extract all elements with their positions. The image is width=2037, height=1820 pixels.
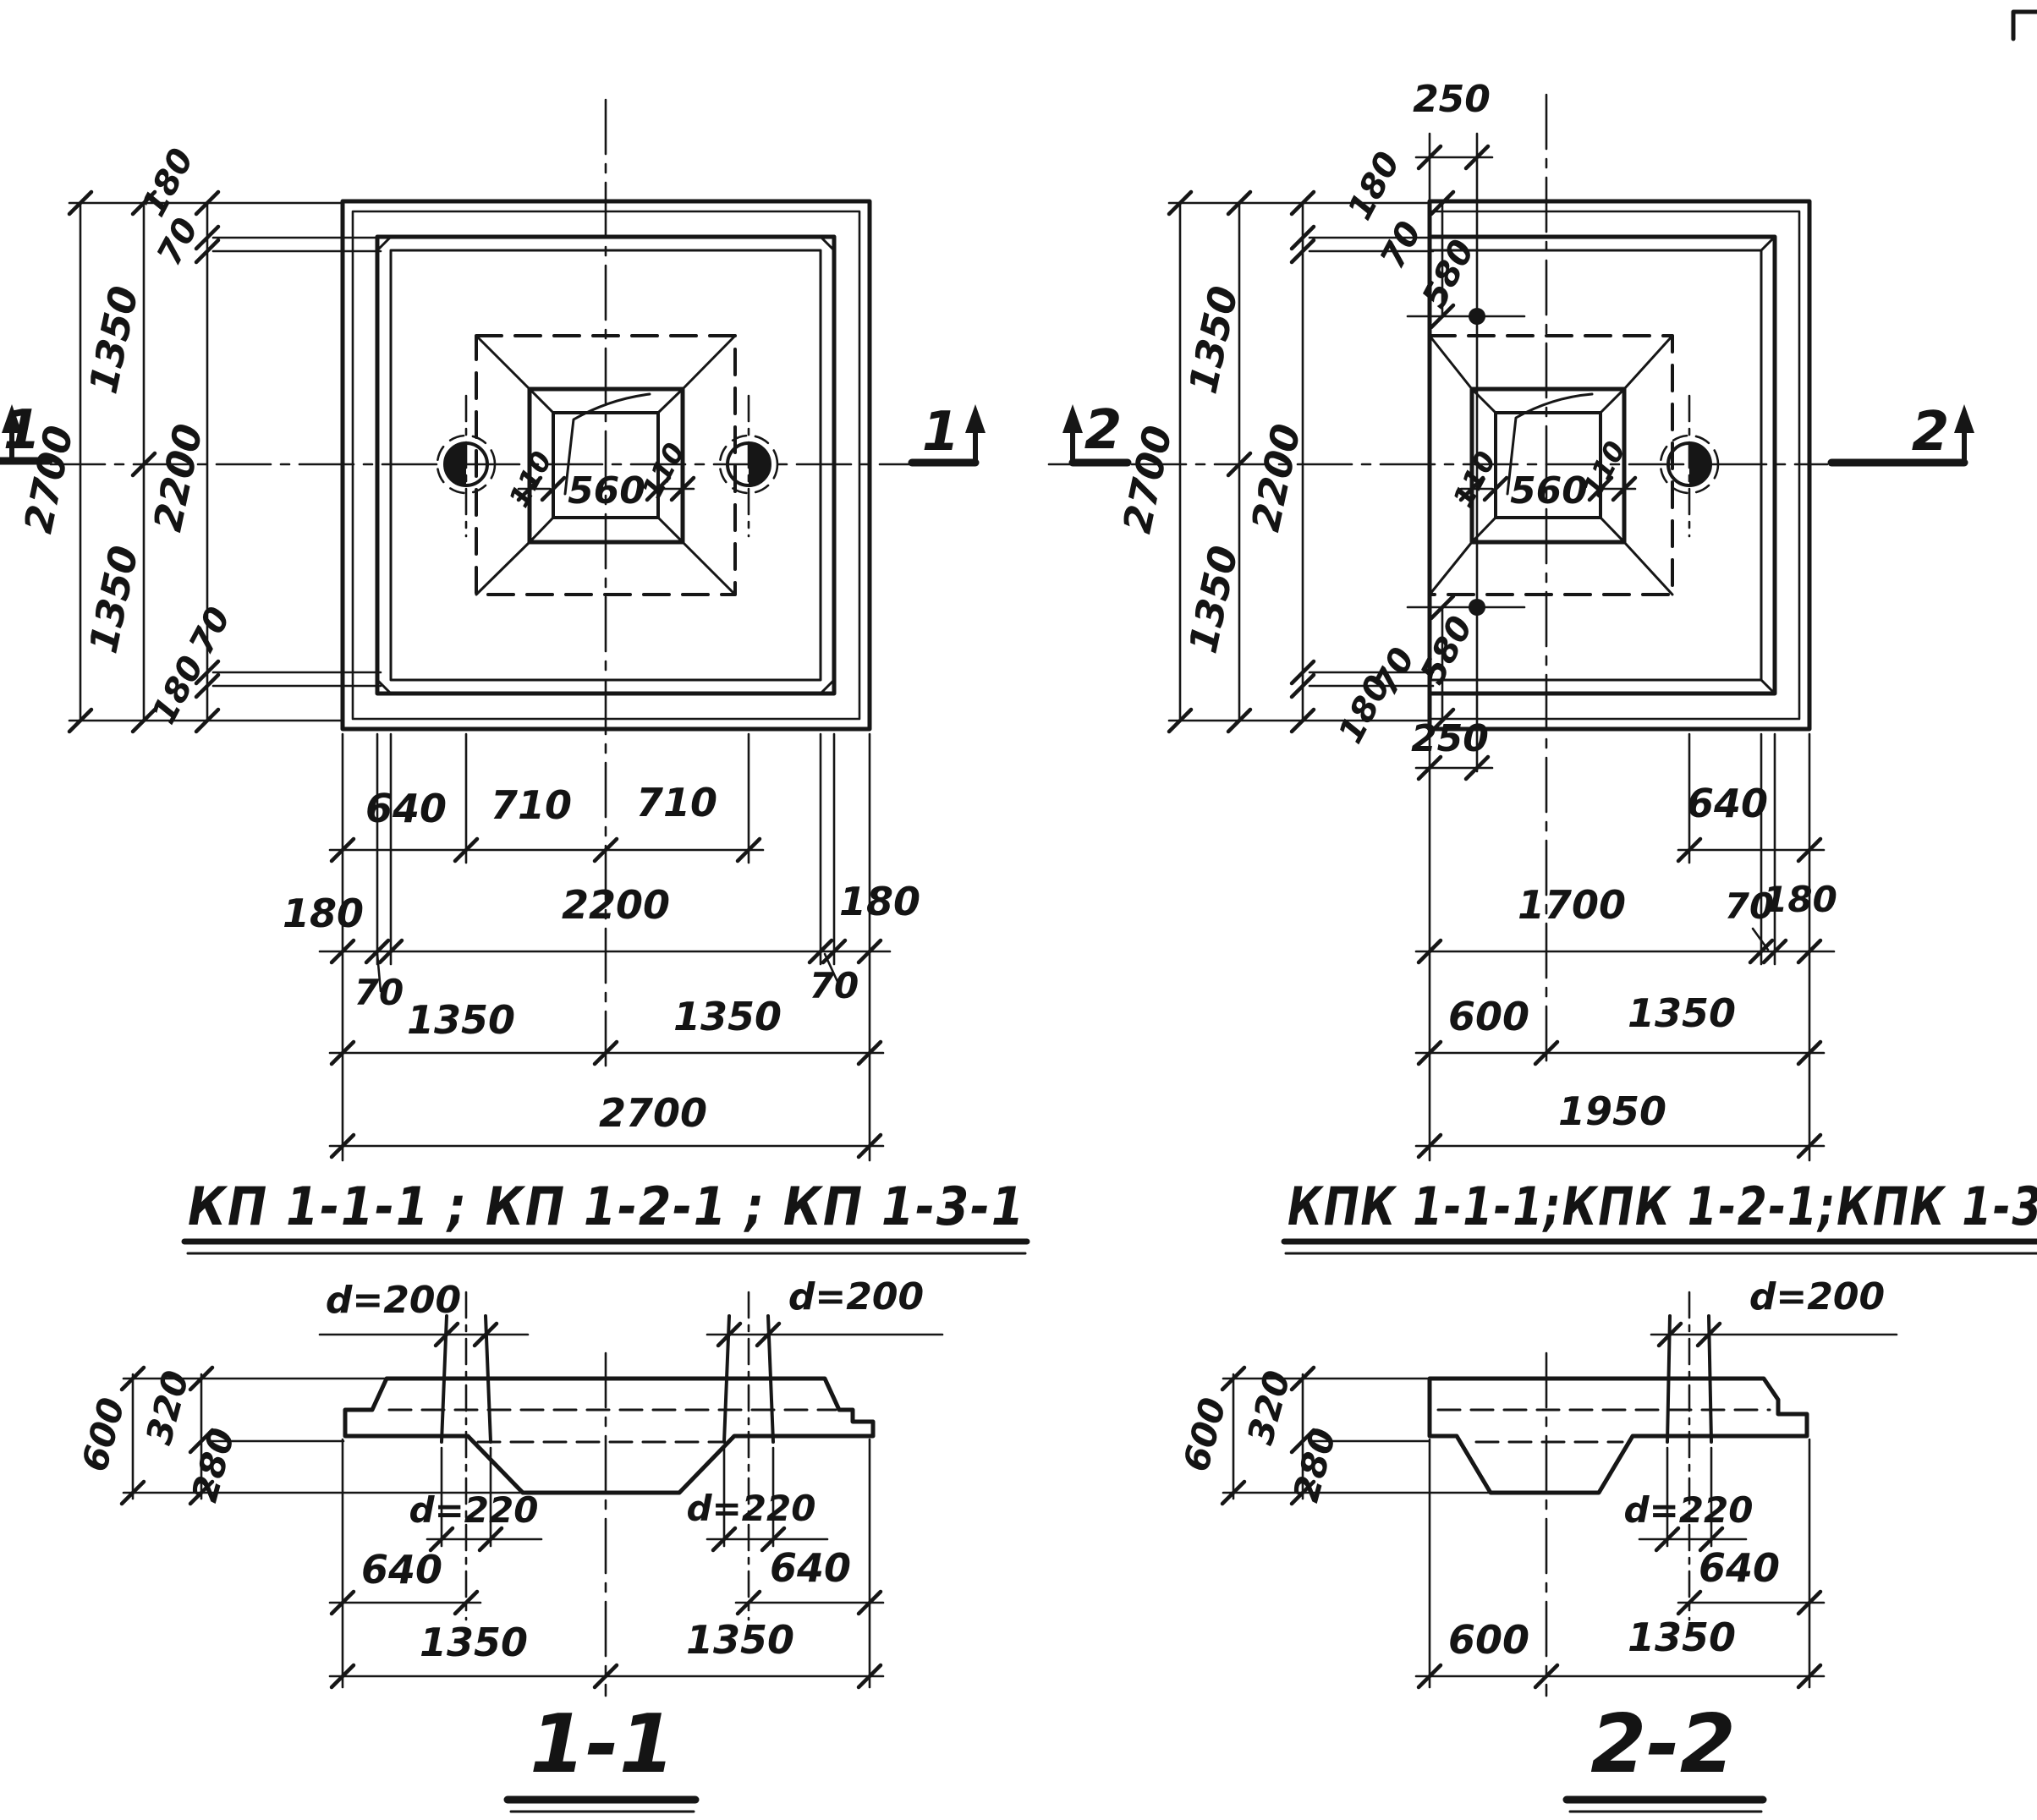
dim-label: 1350 <box>1180 282 1247 397</box>
dim-label: d=220 <box>409 1489 539 1531</box>
section-2-2: d=200 320 600 280 d=220 640 600 1350 2-2 <box>1175 1275 1897 1812</box>
dim-label: 250 <box>1413 78 1491 121</box>
dim-label: 640 <box>1687 781 1768 826</box>
dim-label: 70 <box>182 601 239 661</box>
dim-label: 2200 <box>1243 419 1309 534</box>
section-mark-2-right-arrow <box>1954 404 1974 433</box>
dim-label: 1350 <box>1180 541 1247 656</box>
dim-label: 600 <box>74 1394 133 1476</box>
dim-label: 70 <box>1373 216 1430 276</box>
dim-label: d=220 <box>1624 1489 1754 1531</box>
dim-label: d=200 <box>326 1279 461 1322</box>
dim-label: 600 <box>1175 1394 1234 1476</box>
dim-label: 600 <box>1448 994 1529 1039</box>
drawing-sheet: 180 70 1350 2700 2200 1350 70 180 560 11… <box>0 0 2037 1820</box>
section-mark-1-right-arrow <box>965 404 986 433</box>
section-title: 2-2 <box>1590 1698 1736 1791</box>
plan-view-kpk: 250 180 70 580 1350 2700 2200 1350 580 7… <box>1049 78 2037 1253</box>
dim-label: 180 <box>839 879 920 924</box>
dim-label: 180 <box>1763 879 1837 920</box>
section-number: 2 <box>1912 401 1950 463</box>
dim-label: 640 <box>1699 1545 1780 1591</box>
dim-label: 710 <box>636 780 717 825</box>
dim-label: 2700 <box>1114 421 1181 536</box>
dim-label: 580 <box>1414 610 1481 690</box>
sheet-corner-mark <box>2013 12 2037 39</box>
dim-label: 2200 <box>562 882 670 928</box>
section-1-1: d=200 d=200 320 600 280 d=220 d=220 640 … <box>74 1275 942 1812</box>
section-mark-2-left-arrow <box>1062 404 1083 433</box>
dim-label: 2700 <box>599 1090 707 1136</box>
dim-label: 600 <box>1448 1617 1529 1663</box>
dim-label: 1350 <box>673 994 782 1039</box>
footing-profile <box>345 1379 873 1493</box>
dim-label: 180 <box>135 142 202 222</box>
section-number: 1 <box>922 401 960 463</box>
dim-label: d=200 <box>788 1275 924 1318</box>
dim-label: 1350 <box>1628 1614 1736 1660</box>
dim-label: 250 <box>1411 717 1489 760</box>
section-number: 2 <box>1084 399 1123 462</box>
dim-label: 180 <box>283 891 364 936</box>
dim-label: 640 <box>365 786 447 831</box>
dim-label: 1350 <box>686 1617 794 1663</box>
dim-label: 280 <box>184 1424 243 1506</box>
plan-title-kpk: КПК 1-1-1;КПК 1-2-1;КПК 1-3-1 <box>1288 1176 2037 1237</box>
dim-label: 560 <box>1510 469 1588 513</box>
label-leaders-70 <box>377 954 839 991</box>
dim-label: 1350 <box>80 282 147 397</box>
dim-label: 1350 <box>80 541 147 656</box>
anchor-hole-axes <box>466 396 749 536</box>
dim-label: 1350 <box>1628 990 1736 1036</box>
section-number: 1 <box>3 399 41 462</box>
dim-label: 1350 <box>407 997 515 1043</box>
dim-label: 70 <box>810 965 859 1006</box>
dim-label: 640 <box>361 1547 442 1592</box>
dim-label: 1700 <box>1518 882 1626 928</box>
sleeve-axes <box>466 1292 749 1620</box>
dim-label: 640 <box>770 1545 851 1591</box>
dim-label: d=220 <box>687 1488 816 1529</box>
dim-label: 280 <box>1285 1424 1344 1506</box>
dim-label: 70 <box>354 972 404 1013</box>
blueprint-canvas: 180 70 1350 2700 2200 1350 70 180 560 11… <box>0 0 2037 1820</box>
plan-view-kp: 180 70 1350 2700 2200 1350 70 180 560 11… <box>0 100 1027 1253</box>
dim-label: 1950 <box>1558 1088 1666 1134</box>
dim-label: d=200 <box>1749 1275 1885 1318</box>
dim-label: 2200 <box>145 419 211 534</box>
dim-label: 560 <box>568 469 645 513</box>
dim-label: 110 <box>502 446 558 513</box>
dim-label: 580 <box>1415 233 1483 314</box>
dim-label: 710 <box>491 782 572 828</box>
section-title: 1-1 <box>530 1698 675 1791</box>
dim-label: 180 <box>1341 145 1408 226</box>
dim-lines <box>1223 1335 1897 1687</box>
plan-title-kp: КП 1-1-1 ; КП 1-2-1 ; КП 1-3-1 <box>188 1176 1025 1237</box>
dim-label: 1350 <box>420 1620 528 1665</box>
footing-profile <box>1430 1379 1807 1493</box>
